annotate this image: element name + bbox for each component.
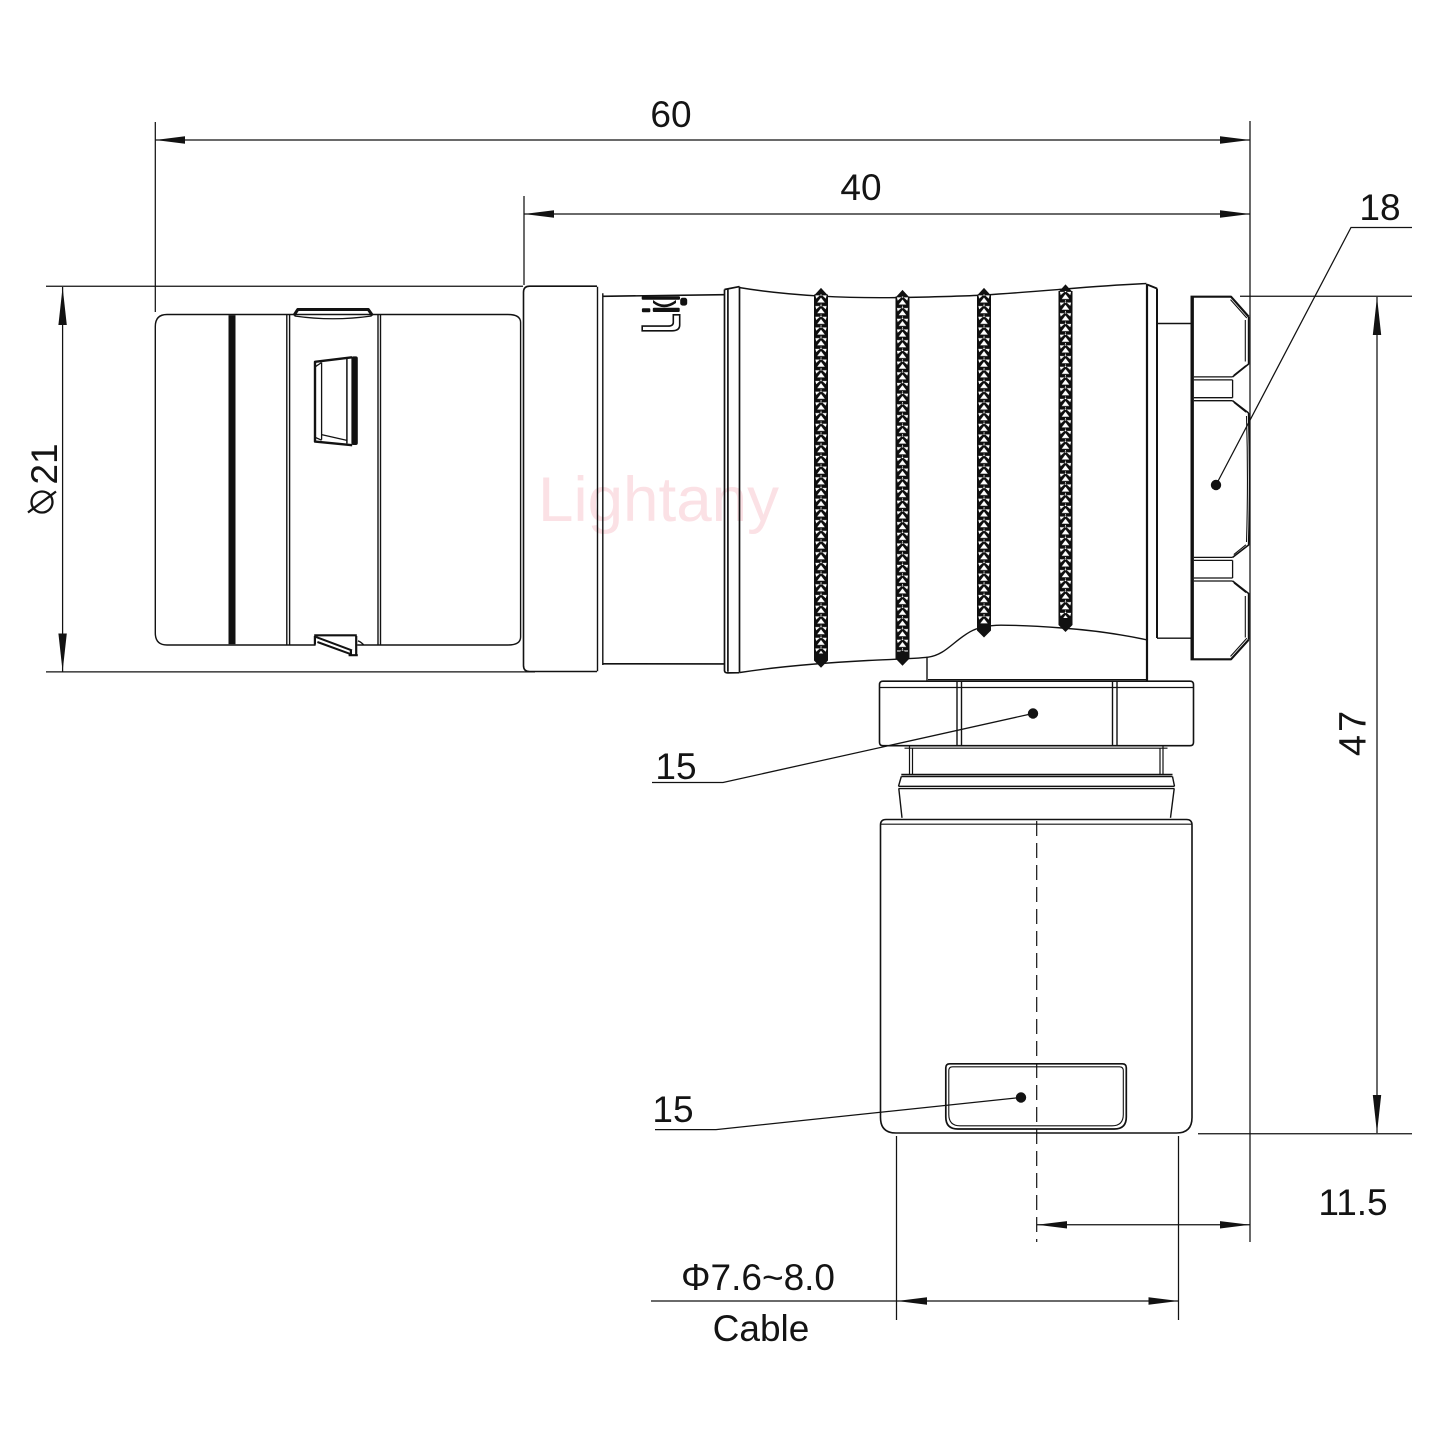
svg-text:Lightany: Lightany: [538, 465, 779, 535]
svg-text:40: 40: [840, 167, 881, 208]
svg-text:21: 21: [24, 443, 65, 484]
svg-text:47: 47: [1333, 708, 1375, 756]
svg-text:15: 15: [652, 1089, 693, 1130]
svg-text:15: 15: [655, 746, 696, 787]
svg-text:Cable: Cable: [713, 1308, 810, 1349]
svg-text:Φ7.6~8.0: Φ7.6~8.0: [681, 1257, 835, 1298]
svg-text:11.5: 11.5: [1318, 1182, 1387, 1223]
svg-text:18: 18: [1359, 187, 1400, 228]
svg-text:60: 60: [650, 94, 691, 135]
